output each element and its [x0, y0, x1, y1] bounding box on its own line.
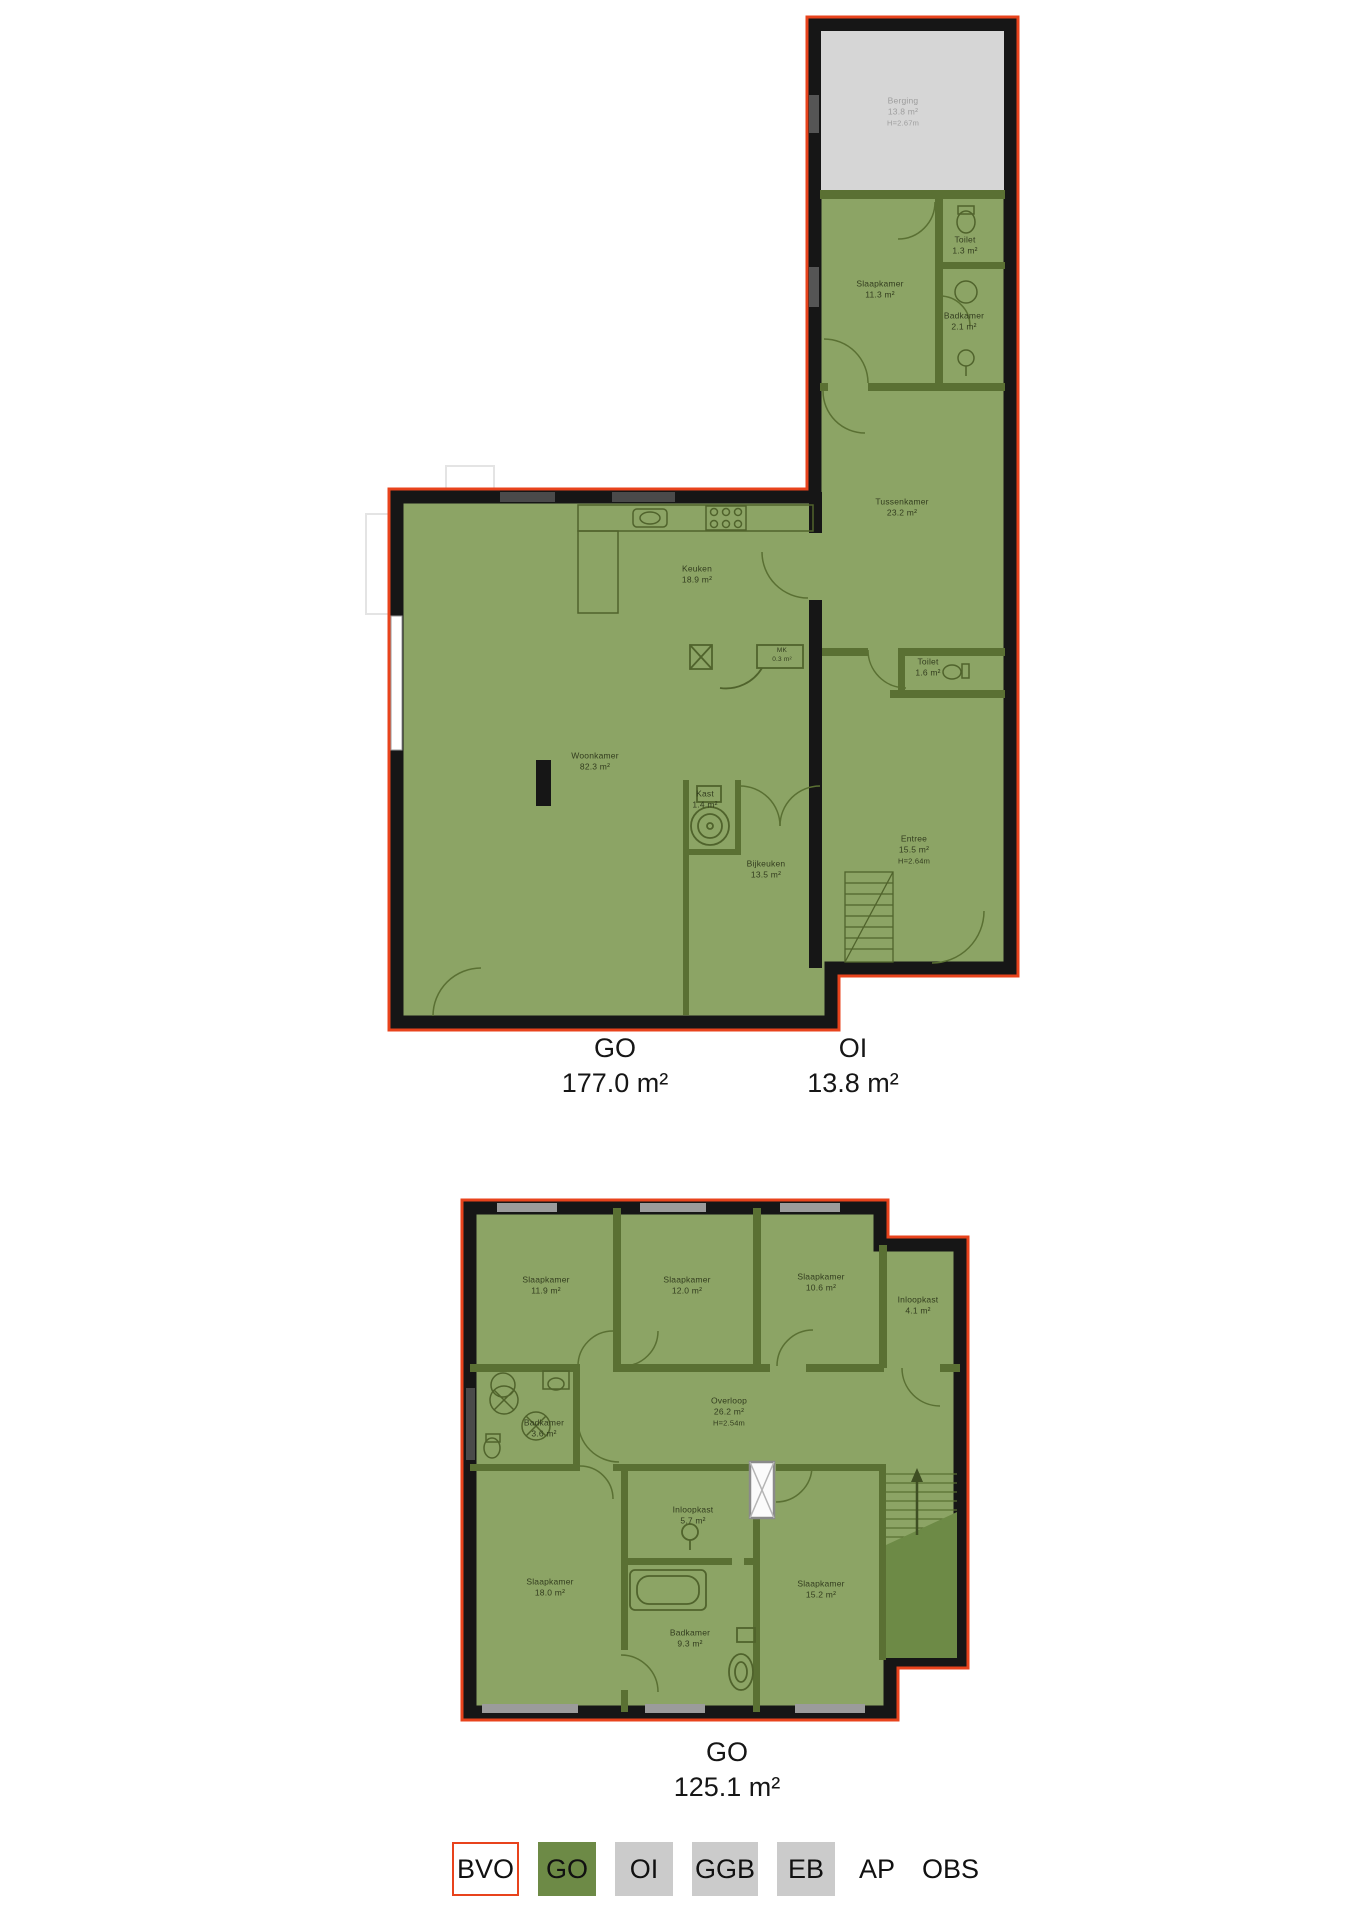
room-label-slaapkamer-18-0: Slaapkamer18.0 m²	[526, 1577, 573, 1600]
window-segment	[795, 1704, 865, 1713]
window-segment	[500, 492, 555, 502]
wall-slot	[809, 267, 819, 307]
room-label-inloopkast-5-7: Inloopkast5.7 m²	[673, 1505, 714, 1528]
room-label-inloopkast-4-1: Inloopkast4.1 m²	[898, 1295, 939, 1318]
legend: BVO GO OI GGB EB AP OBS	[452, 1842, 982, 1896]
window-segment	[497, 1203, 557, 1212]
room-label-slaapkamer-11-3: Slaapkamer11.3 m²	[856, 279, 903, 302]
floorplan-page: Berging13.8 m²H=2.67m Slaapkamer11.3 m² …	[0, 0, 1358, 1920]
room-label-slaapkamer-12-0: Slaapkamer12.0 m²	[663, 1275, 710, 1298]
shaft-icon	[750, 1462, 774, 1518]
room-label-bijkeuken: Bijkeuken13.5 m²	[747, 859, 786, 882]
room-label-overloop: Overloop26.2 m²H=2.54m	[711, 1395, 747, 1428]
room-label-slaapkamer-11-9: Slaapkamer11.9 m²	[522, 1275, 569, 1298]
window-segment	[612, 492, 675, 502]
room-label-kast: Kast1.4 m²	[692, 789, 717, 812]
room-label-tussenkamer: Tussenkamer23.2 m²	[875, 497, 928, 520]
room-label-toilet-1-6: Toilet1.6 m²	[915, 657, 940, 680]
legend-item-bvo: BVO	[452, 1842, 519, 1896]
room-label-mk: MK0.3 m²	[772, 647, 792, 665]
wall-pillar	[536, 760, 551, 806]
room-label-slaapkamer-10-6: Slaapkamer10.6 m²	[797, 1272, 844, 1295]
window-segment	[482, 1704, 578, 1713]
floor1-plan	[366, 25, 1010, 1022]
legend-item-go: GO	[538, 1842, 596, 1896]
wall-slot	[809, 95, 819, 133]
window-segment	[780, 1203, 840, 1212]
area-label-go-floor2: GO125.1 m²	[674, 1735, 781, 1805]
room-label-woonkamer: Woonkamer82.3 m²	[571, 751, 618, 774]
window-segment	[640, 1203, 706, 1212]
room-label-badkamer-3-6: Badkamer3.6 m²	[524, 1418, 564, 1441]
legend-item-ap: AP	[854, 1842, 900, 1896]
room-label-entree: Entree15.5 m²H=2.64m	[898, 833, 930, 866]
legend-item-oi: OI	[615, 1842, 673, 1896]
window	[391, 616, 402, 750]
wall-slot	[466, 1388, 475, 1460]
legend-item-ggb: GGB	[692, 1842, 758, 1896]
room-label-badkamer-2-1: Badkamer2.1 m²	[944, 311, 984, 334]
area-label-oi-floor1: OI13.8 m²	[807, 1031, 899, 1101]
internal-wall	[809, 492, 822, 533]
legend-item-eb: EB	[777, 1842, 835, 1896]
internal-wall	[809, 600, 822, 968]
room-label-badkamer-9-3: Badkamer9.3 m²	[670, 1628, 710, 1651]
room-label-berging: Berging13.8 m²H=2.67m	[887, 95, 919, 128]
room-label-toilet-1-3: Toilet1.3 m²	[952, 235, 977, 258]
area-label-go-floor1: GO177.0 m²	[562, 1031, 669, 1101]
room-label-keuken: Keuken18.9 m²	[682, 564, 712, 587]
room-label-slaapkamer-15-2: Slaapkamer15.2 m²	[797, 1579, 844, 1602]
window-segment	[645, 1704, 705, 1713]
legend-item-obs: OBS	[919, 1842, 982, 1896]
